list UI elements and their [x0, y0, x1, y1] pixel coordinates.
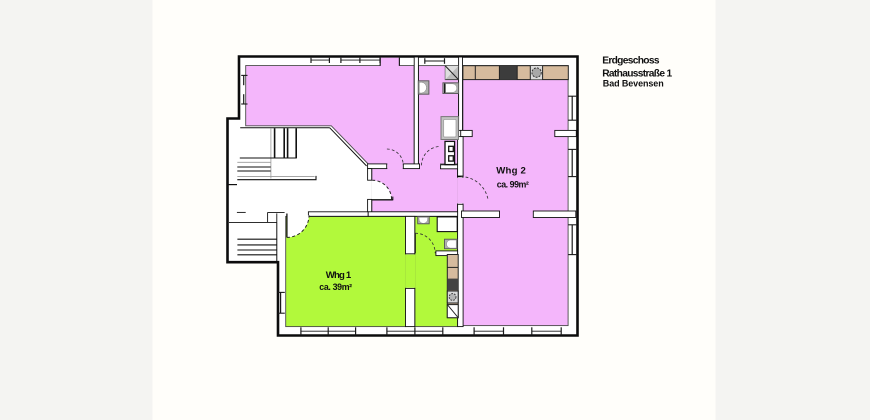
svg-text:Whg 1: Whg 1 — [326, 270, 352, 281]
svg-text:ca. 39m²: ca. 39m² — [319, 282, 352, 292]
svg-text:Erdgeschoss: Erdgeschoss — [602, 56, 660, 67]
svg-text:Whg 2: Whg 2 — [496, 166, 526, 177]
svg-text:ca. 99m²: ca. 99m² — [497, 180, 529, 190]
svg-text:Bad Bevensen: Bad Bevensen — [603, 79, 664, 89]
